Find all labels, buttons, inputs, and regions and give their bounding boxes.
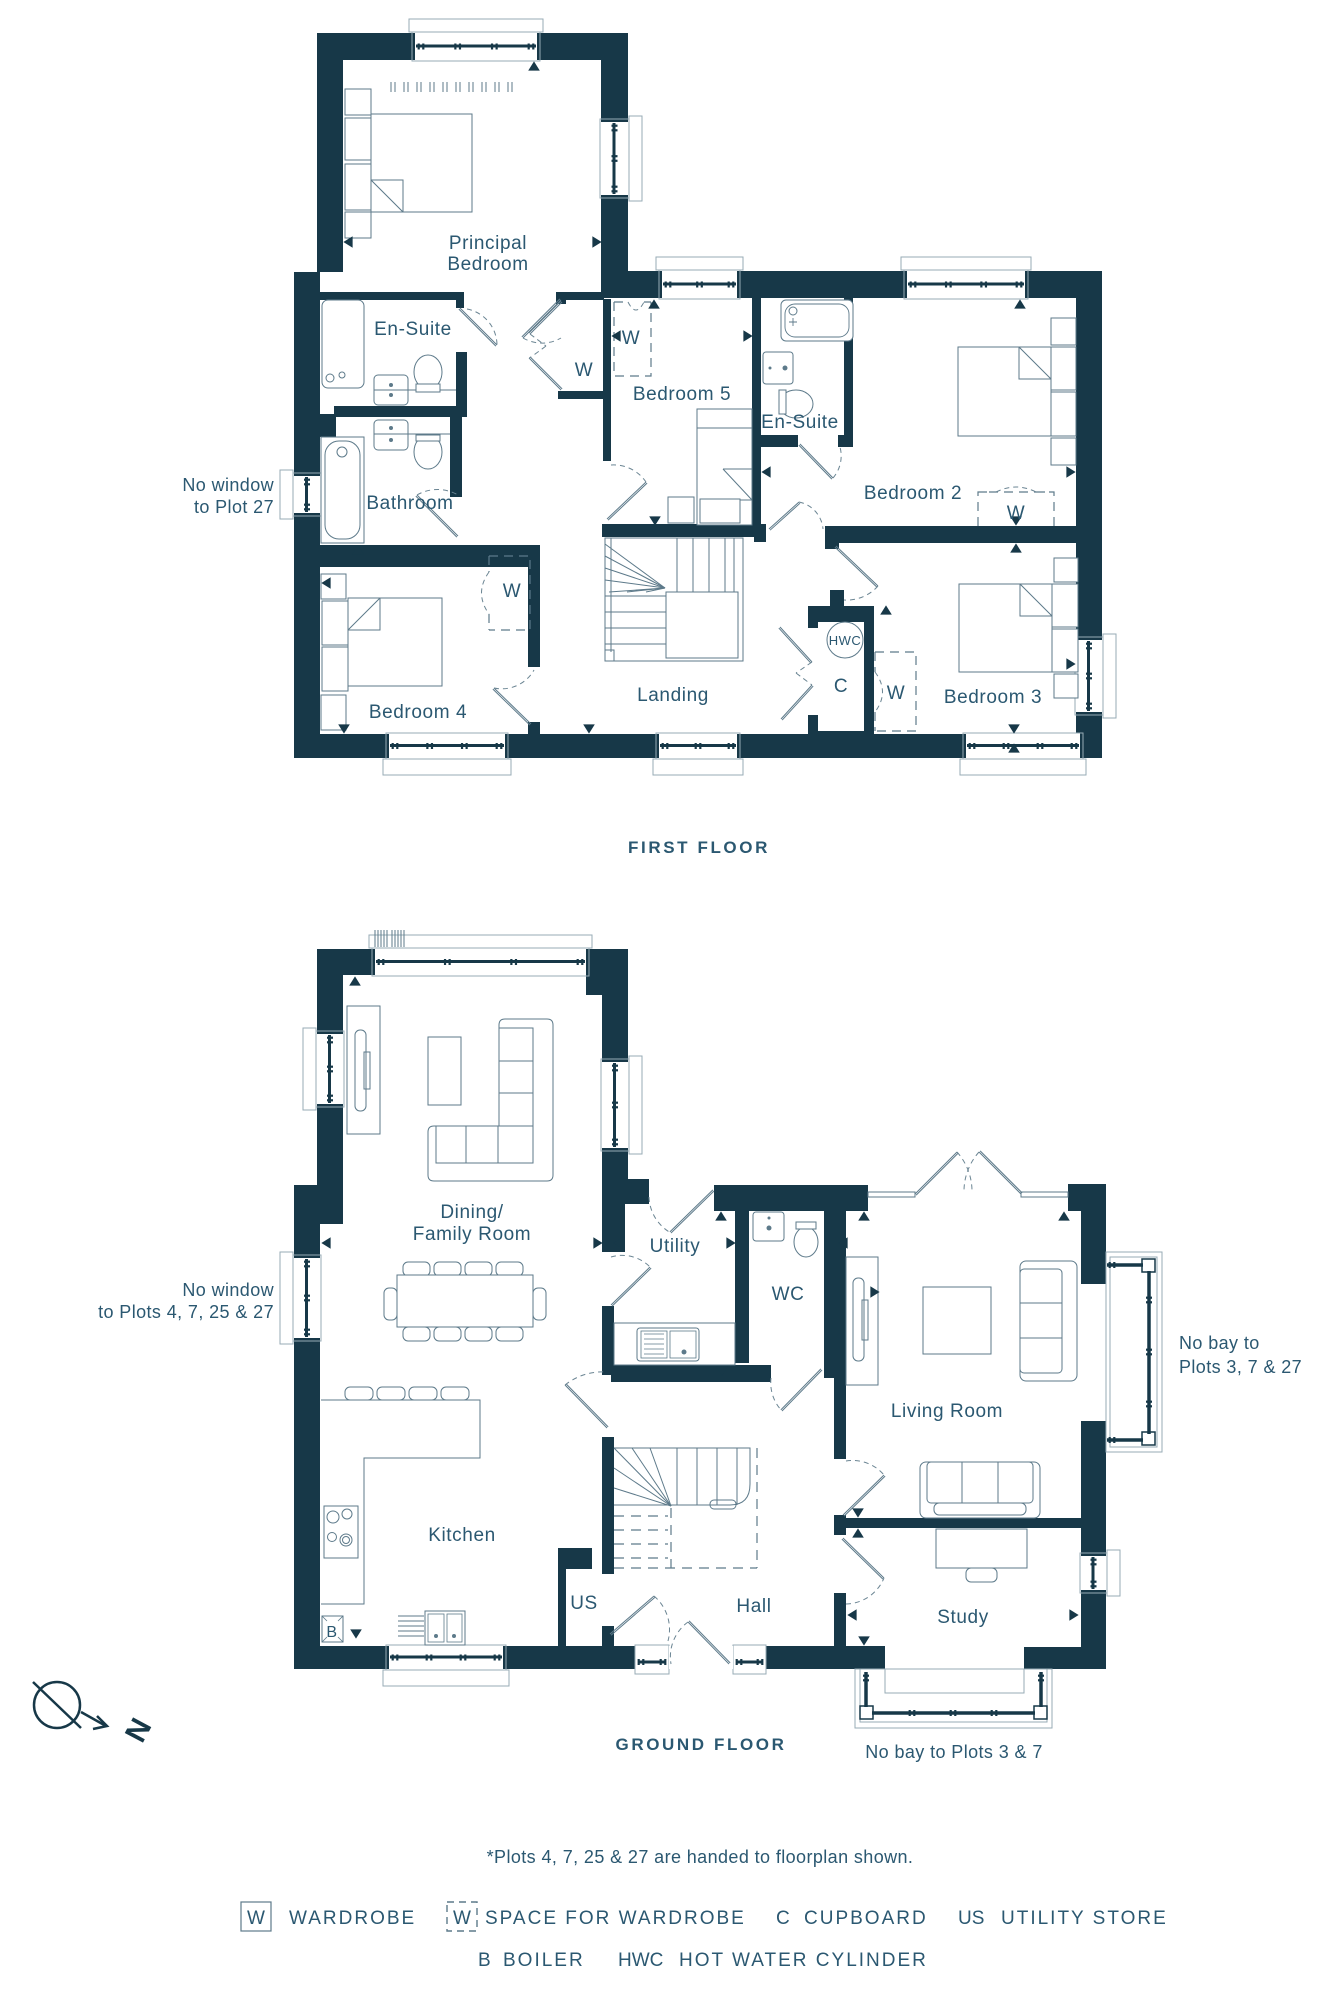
svg-text:WC: WC [772,1284,805,1305]
svg-text:Bedroom 5: Bedroom 5 [633,384,731,405]
svg-text:UTILITY STORE: UTILITY STORE [1001,1908,1168,1929]
svg-text:No window: No window [182,1280,274,1300]
svg-text:No bay to Plots 3 & 7: No bay to Plots 3 & 7 [865,1742,1043,1762]
svg-text:WARDROBE: WARDROBE [289,1908,416,1929]
svg-text:Living Room: Living Room [891,1401,1003,1422]
svg-text:Principal: Principal [449,233,527,254]
svg-text:W: W [453,1908,471,1929]
svg-text:HWC: HWC [618,1950,663,1971]
svg-text:No window: No window [182,475,274,495]
svg-text:Kitchen: Kitchen [428,1525,496,1546]
svg-text:Study: Study [937,1607,989,1628]
svg-text:US: US [570,1593,598,1614]
svg-text:Plots 3, 7 & 27: Plots 3, 7 & 27 [1179,1357,1302,1377]
svg-text:C: C [776,1908,790,1929]
svg-text:W: W [1007,503,1026,524]
svg-text:B: B [326,1624,337,1641]
svg-text:HOT WATER CYLINDER: HOT WATER CYLINDER [679,1950,928,1971]
svg-text:Bathroom: Bathroom [366,493,453,514]
svg-text:to Plot 27: to Plot 27 [194,497,274,517]
svg-text:W: W [503,581,522,602]
svg-text:HWC: HWC [829,633,862,648]
svg-text:Family Room: Family Room [413,1224,532,1245]
svg-text:SPACE FOR WARDROBE: SPACE FOR WARDROBE [485,1908,746,1929]
svg-text:Bedroom: Bedroom [447,254,528,275]
svg-text:Dining/: Dining/ [440,1202,503,1223]
svg-text:Bedroom 2: Bedroom 2 [864,483,962,504]
svg-text:W: W [247,1908,265,1929]
svg-text:BOILER: BOILER [503,1950,585,1971]
svg-text:W: W [622,328,641,349]
svg-text:W: W [887,683,906,704]
svg-text:CUPBOARD: CUPBOARD [804,1908,928,1929]
svg-text:No bay to: No bay to [1179,1333,1260,1353]
svg-text:En-Suite: En-Suite [374,319,452,340]
svg-text:Hall: Hall [736,1596,771,1617]
svg-text:Utility: Utility [650,1236,701,1257]
svg-text:US: US [958,1908,984,1929]
svg-text:to Plots 4, 7, 25 & 27: to Plots 4, 7, 25 & 27 [98,1302,274,1322]
svg-text:Bedroom 4: Bedroom 4 [369,702,467,723]
svg-text:Bedroom 3: Bedroom 3 [944,687,1042,708]
svg-text:GROUND FLOOR: GROUND FLOOR [616,1735,787,1754]
svg-text:En-Suite: En-Suite [761,412,839,433]
svg-text:FIRST FLOOR: FIRST FLOOR [628,838,770,857]
svg-text:Landing: Landing [637,685,709,706]
svg-text:B: B [478,1950,491,1971]
svg-text:C: C [834,676,848,697]
svg-text:W: W [575,360,594,381]
svg-text:*Plots 4, 7, 25 & 27 are hande: *Plots 4, 7, 25 & 27 are handed to floor… [487,1847,914,1867]
